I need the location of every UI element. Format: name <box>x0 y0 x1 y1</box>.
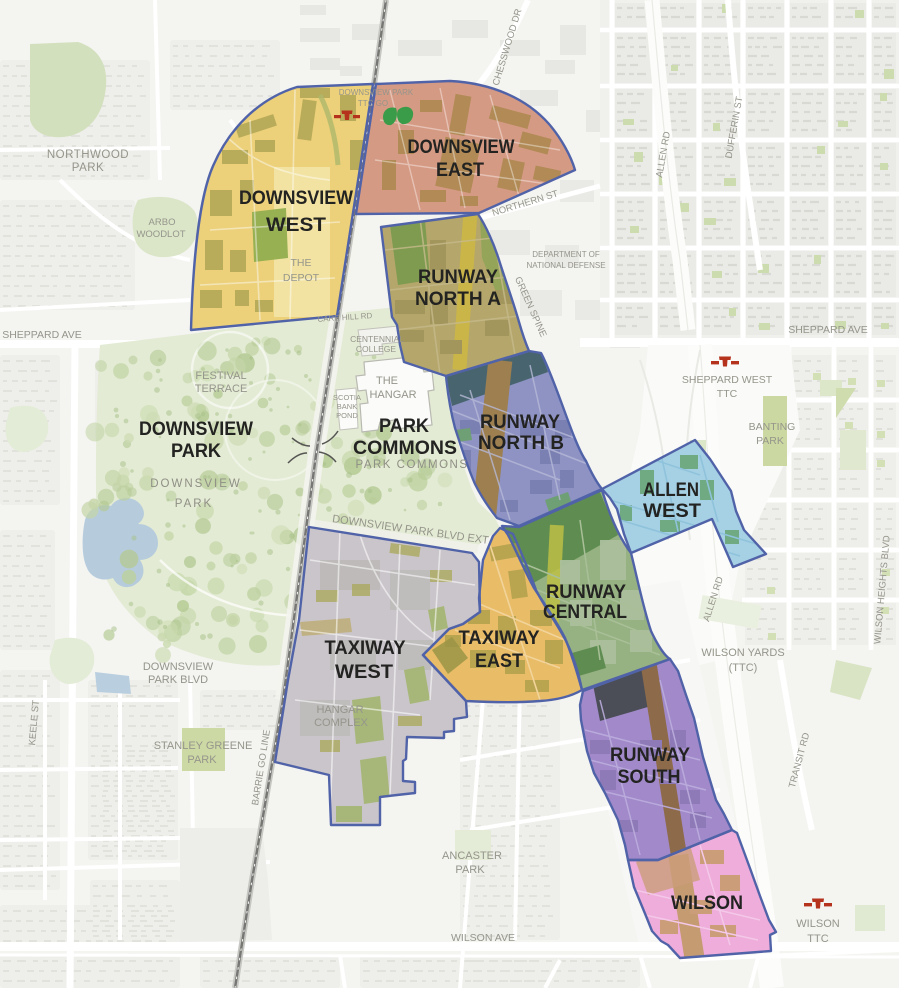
svg-text:CENTRAL: CENTRAL <box>543 602 627 623</box>
svg-text:TERRACE: TERRACE <box>195 383 248 395</box>
svg-text:PARK: PARK <box>171 440 221 462</box>
svg-text:PARK: PARK <box>379 415 429 437</box>
svg-text:RUNWAY: RUNWAY <box>546 582 626 603</box>
svg-text:COMMONS: COMMONS <box>353 437 457 459</box>
svg-text:SHEPPARD AVE: SHEPPARD AVE <box>2 329 82 341</box>
svg-text:PARK: PARK <box>72 162 104 174</box>
svg-text:RUNWAY: RUNWAY <box>418 267 498 288</box>
svg-text:POND: POND <box>336 411 358 420</box>
svg-text:SOUTH: SOUTH <box>618 767 681 788</box>
svg-text:WILSON AVE: WILSON AVE <box>451 932 515 944</box>
svg-text:SHEPPARD WEST: SHEPPARD WEST <box>682 374 773 386</box>
svg-text:FESTIVAL: FESTIVAL <box>195 370 246 382</box>
svg-text:ALLEN: ALLEN <box>643 480 699 501</box>
svg-text:PARK: PARK <box>175 498 213 510</box>
svg-text:ANCASTER: ANCASTER <box>442 850 502 862</box>
svg-text:SHEPPARD AVE: SHEPPARD AVE <box>788 324 868 336</box>
svg-text:WEST: WEST <box>335 662 393 683</box>
svg-text:NORTH B: NORTH B <box>478 433 564 454</box>
svg-text:SCOTIA: SCOTIA <box>333 393 361 402</box>
svg-text:DOWNSVIEW: DOWNSVIEW <box>139 418 254 440</box>
svg-text:COLLEGE: COLLEGE <box>356 344 396 354</box>
svg-text:PARK: PARK <box>187 754 217 766</box>
svg-text:WILSON YARDS: WILSON YARDS <box>701 647 784 659</box>
svg-text:BANTING: BANTING <box>749 421 796 433</box>
svg-text:DOWNSVIEW: DOWNSVIEW <box>239 187 354 209</box>
svg-text:DEPOT: DEPOT <box>283 272 320 284</box>
svg-text:DOWNSVIEW: DOWNSVIEW <box>408 136 515 158</box>
svg-text:PARK: PARK <box>455 864 485 876</box>
svg-text:TAXIWAY: TAXIWAY <box>459 628 540 649</box>
svg-text:WOODLOT: WOODLOT <box>136 229 185 240</box>
svg-text:NATIONAL DEFENSE: NATIONAL DEFENSE <box>526 261 605 270</box>
svg-text:RUNWAY: RUNWAY <box>610 745 690 766</box>
svg-text:TTC GO: TTC GO <box>358 99 388 108</box>
svg-text:PARK BLVD: PARK BLVD <box>148 674 208 686</box>
svg-text:EAST: EAST <box>436 159 484 181</box>
svg-text:TTC: TTC <box>717 388 738 400</box>
svg-text:NORTHWOOD: NORTHWOOD <box>47 149 129 161</box>
svg-text:RUNWAY: RUNWAY <box>480 412 560 433</box>
svg-text:WEST: WEST <box>266 214 326 236</box>
svg-text:HANGAR: HANGAR <box>369 389 416 401</box>
svg-text:EAST: EAST <box>475 651 523 672</box>
svg-text:TAXIWAY: TAXIWAY <box>325 638 406 659</box>
svg-text:COMPLEX: COMPLEX <box>314 717 368 729</box>
svg-text:TTC: TTC <box>807 933 828 945</box>
svg-text:THE: THE <box>291 257 312 269</box>
svg-text:WEST: WEST <box>643 501 701 522</box>
svg-text:DOWNSVIEW: DOWNSVIEW <box>150 478 241 490</box>
svg-text:PARK COMMONS: PARK COMMONS <box>356 459 469 471</box>
svg-text:ARBO: ARBO <box>149 217 176 228</box>
svg-text:PARK: PARK <box>756 435 784 447</box>
svg-text:STANLEY GREENE: STANLEY GREENE <box>154 740 253 752</box>
svg-text:(TTC): (TTC) <box>729 662 758 674</box>
svg-text:DOWNSVIEW PARK: DOWNSVIEW PARK <box>339 88 414 97</box>
svg-text:WILSON: WILSON <box>796 918 839 930</box>
svg-text:WILSON: WILSON <box>671 892 743 914</box>
svg-text:NORTH A: NORTH A <box>415 289 501 310</box>
svg-text:DEPARTMENT OF: DEPARTMENT OF <box>532 250 600 259</box>
svg-text:THE: THE <box>376 375 398 387</box>
svg-text:CENTENNIAL: CENTENNIAL <box>350 334 404 344</box>
svg-text:BANK: BANK <box>337 402 357 411</box>
svg-text:DOWNSVIEW: DOWNSVIEW <box>143 661 214 673</box>
svg-text:HANGAR: HANGAR <box>316 704 363 716</box>
